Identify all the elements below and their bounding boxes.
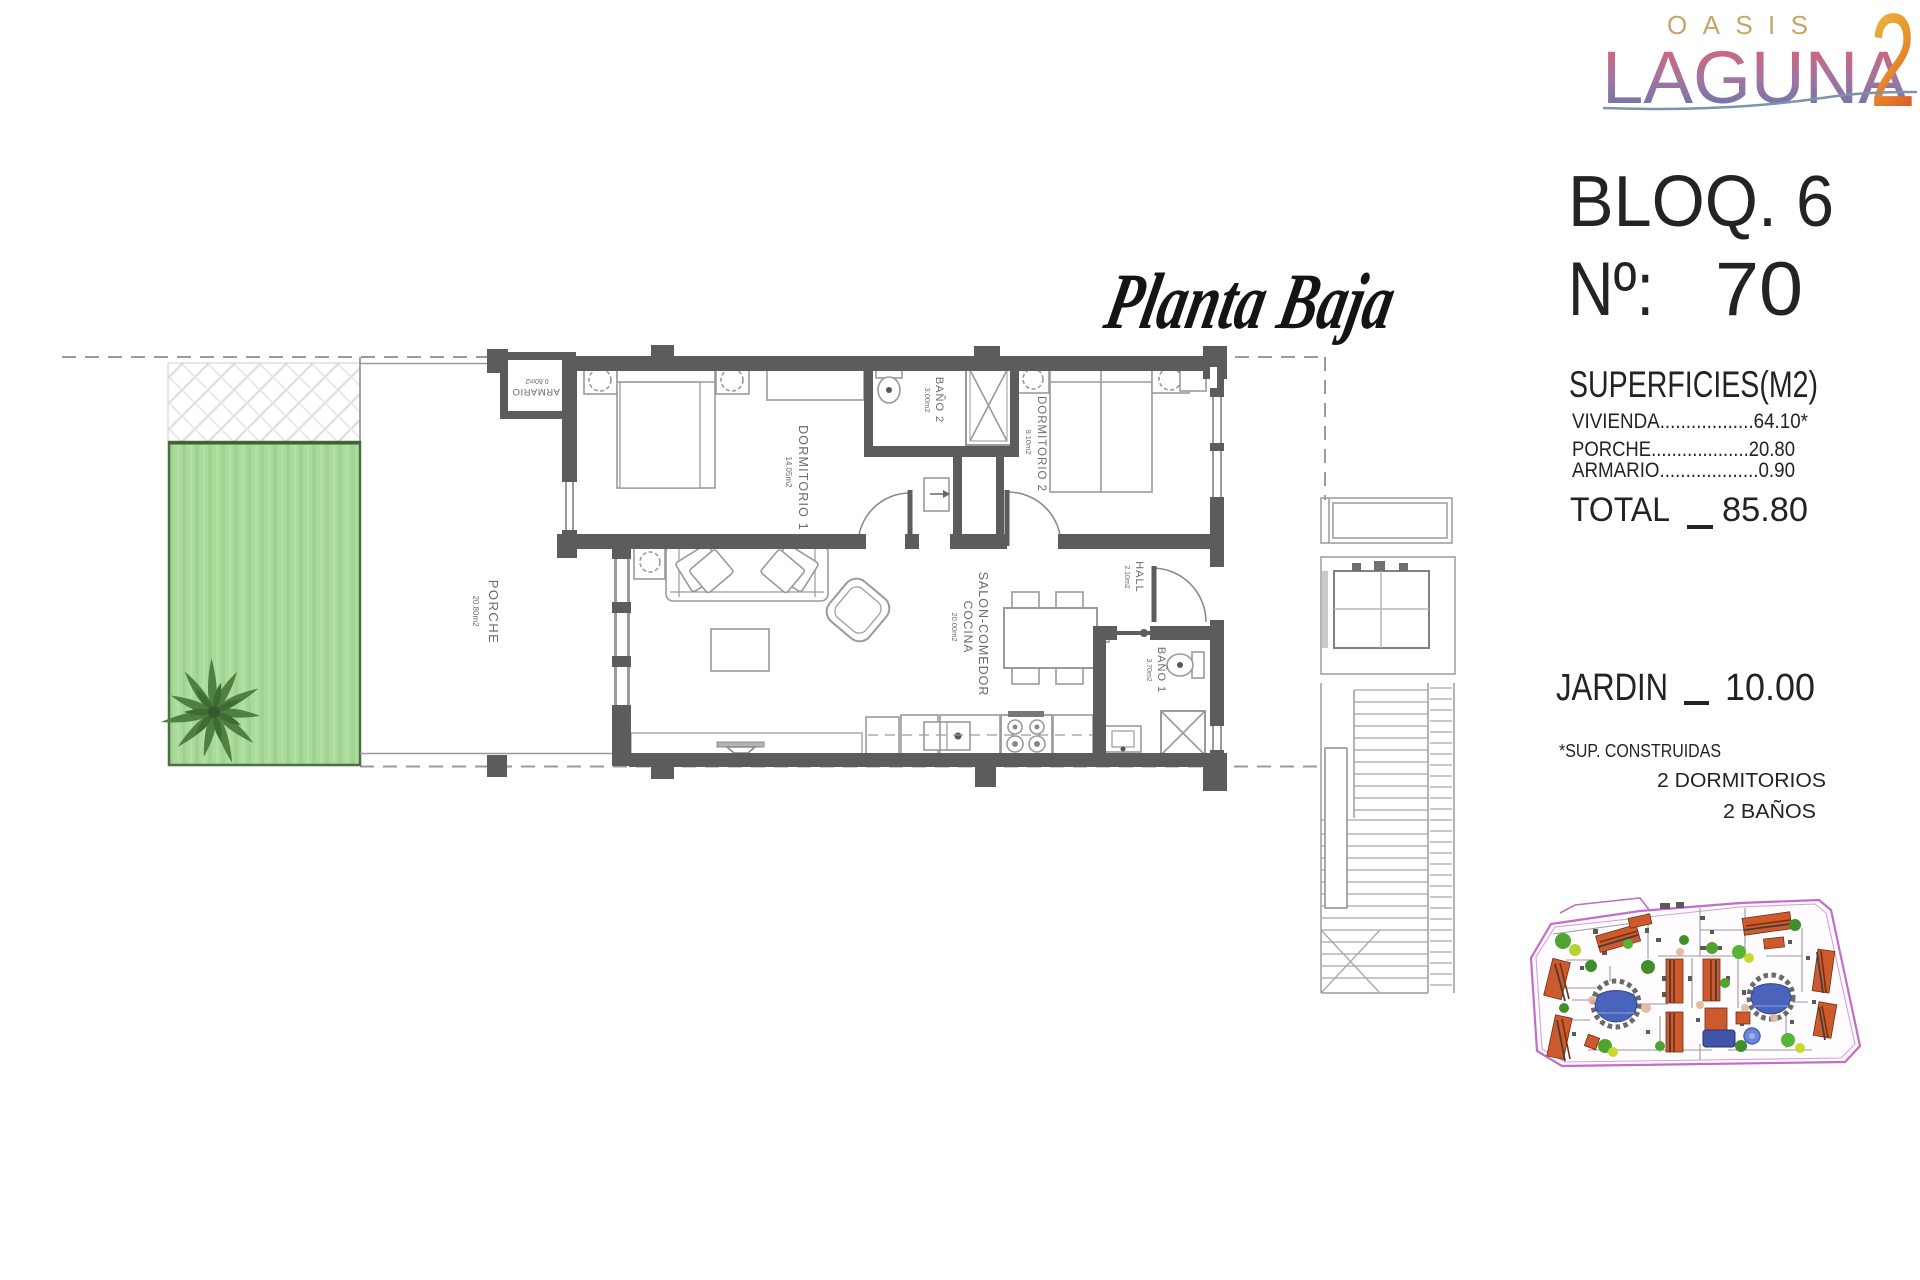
svg-text:*SUP. CONSTRUIDAS: *SUP. CONSTRUIDAS: [1559, 741, 1721, 761]
svg-text:JARDIN: JARDIN: [1556, 667, 1668, 709]
svg-text:COCINA: COCINA: [961, 601, 975, 654]
svg-text:20.00m2: 20.00m2: [950, 612, 959, 641]
svg-text:TOTAL: TOTAL: [1570, 491, 1670, 529]
svg-text:BAÑO 1: BAÑO 1: [1155, 647, 1168, 693]
svg-text:SALON-COMEDOR: SALON-COMEDOR: [976, 572, 990, 697]
svg-text:10.00: 10.00: [1725, 667, 1815, 709]
svg-text:0.60m2: 0.60m2: [525, 377, 548, 384]
svg-text:2: 2: [1870, 0, 1916, 135]
svg-text:Planta Baja: Planta Baja: [1097, 258, 1402, 346]
svg-text:PORCHE...................20.80: PORCHE...................20.80: [1572, 438, 1795, 461]
svg-text:ARMARIO...................0.90: ARMARIO...................0.90: [1572, 459, 1795, 482]
svg-text:9.10m2: 9.10m2: [1024, 429, 1033, 454]
svg-text:DORMITORIO 2: DORMITORIO 2: [1035, 396, 1047, 492]
svg-text:ARMARIO: ARMARIO: [512, 386, 560, 397]
svg-text:SUPERFICIES(M2): SUPERFICIES(M2): [1569, 364, 1818, 405]
svg-text:DORMITORIO 1: DORMITORIO 1: [796, 425, 810, 531]
svg-text:3.70m2: 3.70m2: [1145, 658, 1152, 681]
svg-text:20.80m2: 20.80m2: [471, 595, 480, 627]
svg-text:Nº:: Nº:: [1568, 247, 1654, 332]
svg-text:BLOQ. 6: BLOQ. 6: [1568, 162, 1834, 242]
svg-text:HALL: HALL: [1133, 561, 1145, 593]
svg-text:14.05m2: 14.05m2: [784, 456, 793, 488]
svg-text:2 DORMITORIOS: 2 DORMITORIOS: [1657, 770, 1826, 792]
svg-text:2.10m2: 2.10m2: [1123, 565, 1130, 588]
svg-text:PORCHE: PORCHE: [486, 580, 501, 645]
svg-text:BAÑO 2: BAÑO 2: [933, 377, 946, 423]
svg-text:2 BAÑOS: 2 BAÑOS: [1723, 799, 1816, 823]
svg-text:3.00m2: 3.00m2: [923, 387, 932, 412]
svg-text:VIVIENDA..................64.1: VIVIENDA..................64.10*: [1572, 410, 1808, 433]
svg-text:85.80: 85.80: [1722, 491, 1808, 529]
svg-text:70: 70: [1715, 247, 1803, 332]
